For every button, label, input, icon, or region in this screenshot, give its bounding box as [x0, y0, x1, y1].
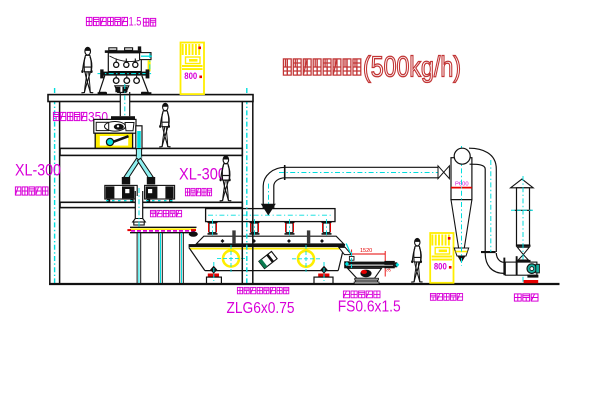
svg-text:800: 800 — [184, 71, 197, 82]
svg-text:1.5: 1.5 — [129, 15, 142, 29]
svg-text:800: 800 — [434, 262, 447, 273]
svg-text:1520: 1520 — [360, 248, 372, 254]
svg-text:XL-300: XL-300 — [179, 166, 226, 184]
svg-text:FS0.6x1.5: FS0.6x1.5 — [338, 299, 401, 316]
svg-text:XL-300: XL-300 — [15, 162, 61, 180]
svg-text:ZLG6x0.75: ZLG6x0.75 — [227, 300, 295, 317]
svg-text:(500kg/h): (500kg/h) — [363, 52, 461, 84]
